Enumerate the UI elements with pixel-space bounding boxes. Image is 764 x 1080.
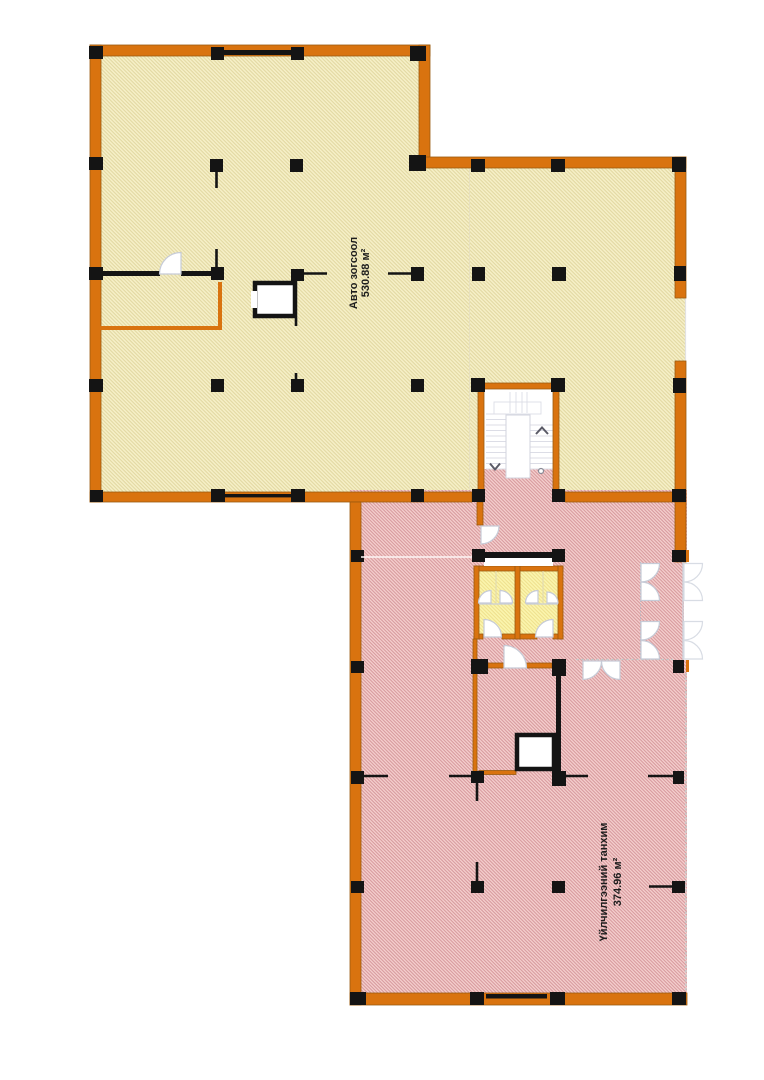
svg-text:530.88 м²: 530.88 м² [360,248,372,297]
svg-text:374.96 м²: 374.96 м² [612,857,624,906]
svg-text:Авто зогсоол: Авто зогсоол [348,237,360,309]
svg-text:Үйлчилгээний танхим: Үйлчилгээний танхим [598,823,610,942]
